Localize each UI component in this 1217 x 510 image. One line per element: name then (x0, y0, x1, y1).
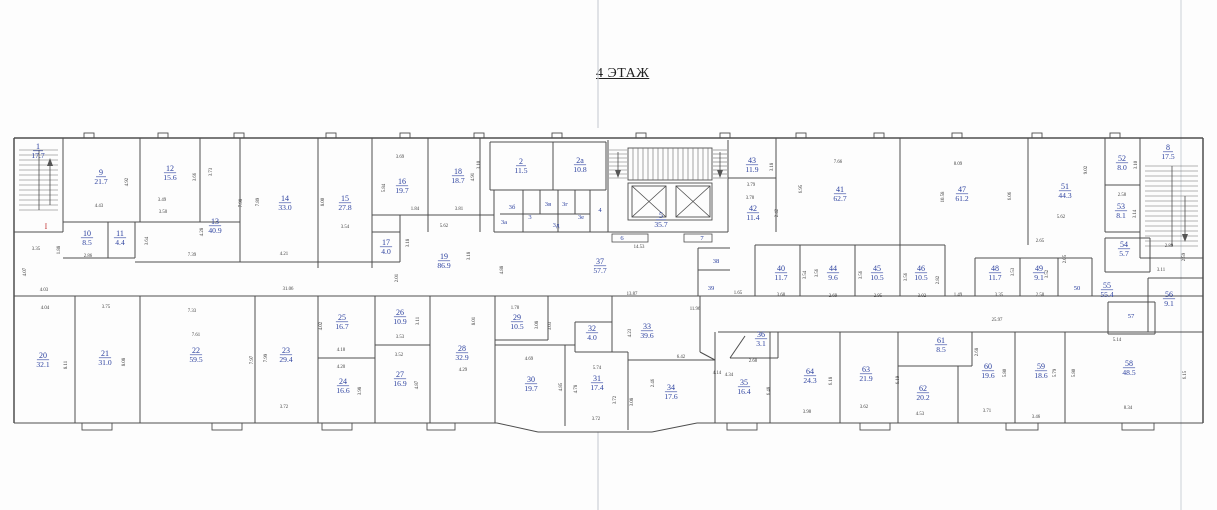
dimension-label: 4.14 (713, 371, 722, 376)
svg-text:14: 14 (281, 194, 289, 203)
dimension-label: 4.28 (200, 227, 205, 236)
dimension-label: 1.84 (411, 207, 420, 212)
room-60-label: 6019.6 (981, 362, 994, 380)
svg-text:18.6: 18.6 (1034, 371, 1047, 380)
room-45-label: 4510.5 (870, 264, 883, 282)
dimension-label: 3.18 (467, 251, 472, 260)
svg-text:51: 51 (1061, 182, 1069, 191)
dimension-label: 4.43 (95, 204, 104, 209)
svg-text:19.6: 19.6 (981, 371, 994, 380)
svg-text:10.5: 10.5 (510, 322, 523, 331)
dimension-label: 8.08 (122, 357, 127, 366)
dimension-label: 4.85 (559, 382, 564, 391)
svg-text:2: 2 (519, 157, 523, 166)
dimension-label: 3.98 (803, 410, 812, 415)
room-6-label: 6 (620, 235, 624, 242)
dimension-labels: 3.354.074.434.923.493.503.663.734.287.39… (23, 155, 1188, 422)
room-52-label: 528.0 (1116, 154, 1128, 172)
room-27-label: 2716.9 (393, 370, 406, 388)
svg-text:30: 30 (527, 375, 535, 384)
room-34-label: 3417.6 (664, 383, 677, 401)
room-59-label: 5918.6 (1034, 362, 1047, 380)
dimension-label: 8.11 (64, 360, 69, 369)
room-23-label: 2329.4 (279, 346, 292, 364)
room-3в-label: 3в (545, 201, 551, 208)
svg-text:5: 5 (659, 211, 663, 220)
dimension-label: 11.96 (690, 307, 701, 312)
svg-text:41: 41 (836, 185, 844, 194)
dimension-label: 7.97 (250, 355, 255, 364)
room-16-label: 1619.7 (395, 177, 408, 195)
dimension-label: 3.75 (102, 305, 111, 310)
room-57-label: 57 (1128, 313, 1135, 320)
svg-text:13: 13 (211, 217, 219, 226)
svg-text:28: 28 (458, 344, 466, 353)
dimension-label: 4.02 (319, 321, 324, 330)
dimension-label: 3.73 (209, 167, 214, 176)
svg-text:60: 60 (984, 362, 992, 371)
svg-text:58: 58 (1125, 359, 1133, 368)
room-3-label: 3 (528, 214, 532, 221)
room-58-label: 5848.5 (1122, 359, 1135, 377)
svg-text:10.5: 10.5 (870, 273, 883, 282)
svg-text:49: 49 (1035, 264, 1043, 273)
dimension-label: 2.58 (1118, 193, 1127, 198)
dimension-label: 3.79 (747, 183, 756, 188)
room-39-label: 39 (708, 285, 715, 292)
dimension-label: 4.53 (916, 412, 925, 417)
room-18-label: 1818.7 (451, 167, 464, 185)
svg-text:9.6: 9.6 (828, 273, 838, 282)
dimension-label: 3.54 (803, 270, 808, 279)
svg-text:62.7: 62.7 (833, 194, 846, 203)
red-mark: I (45, 222, 48, 231)
svg-text:54: 54 (1120, 240, 1128, 249)
dimension-label: 5.84 (382, 183, 387, 192)
svg-text:38: 38 (713, 258, 720, 265)
room-40-label: 4011.7 (774, 264, 787, 282)
dimension-label: 3.49 (158, 198, 167, 203)
dimension-label: 6.15 (1183, 370, 1188, 379)
svg-text:16.9: 16.9 (393, 379, 406, 388)
room-2-label: 211.5 (514, 157, 527, 175)
dimension-label: 2.89 (1165, 244, 1174, 249)
svg-text:34: 34 (667, 383, 675, 392)
svg-text:20.2: 20.2 (916, 393, 929, 402)
svg-text:17.6: 17.6 (664, 392, 677, 401)
svg-text:44.3: 44.3 (1058, 191, 1071, 200)
svg-text:4.4: 4.4 (115, 238, 125, 247)
svg-text:33: 33 (643, 322, 651, 331)
svg-text:1: 1 (36, 142, 40, 151)
dimension-label: 5.80 (1003, 368, 1008, 377)
svg-text:8.0: 8.0 (1117, 163, 1127, 172)
room-46-label: 4610.5 (914, 264, 927, 282)
dimension-label: 6.95 (799, 184, 804, 193)
svg-text:37: 37 (596, 257, 604, 266)
svg-text:21.7: 21.7 (94, 177, 107, 186)
svg-text:31.0: 31.0 (98, 358, 111, 367)
svg-text:57.7: 57.7 (593, 266, 606, 275)
room-14-label: 1433.0 (278, 194, 291, 212)
room-62-label: 6220.2 (916, 384, 929, 402)
dimension-label: 25.97 (992, 318, 1003, 323)
dimension-label: 4.88 (500, 265, 505, 274)
svg-text:62: 62 (919, 384, 927, 393)
room-38-label: 38 (713, 258, 720, 265)
svg-text:21.9: 21.9 (859, 374, 872, 383)
dimension-label: 8.09 (954, 162, 963, 167)
elevator-core-icon (609, 148, 727, 242)
room-63-label: 6321.9 (859, 365, 872, 383)
room-44-label: 449.6 (827, 264, 839, 282)
dimension-label: 4.91 (471, 172, 476, 181)
dimension-label: 3.46 (1032, 415, 1041, 420)
dimension-label: 5.80 (1072, 368, 1077, 377)
room-15-label: 1527.8 (338, 194, 351, 212)
dimension-label: 3.56 (904, 272, 909, 281)
room-26-label: 2610.9 (393, 308, 406, 326)
svg-text:24.3: 24.3 (803, 376, 816, 385)
dimension-label: 4.34 (725, 373, 734, 378)
svg-text:11.7: 11.7 (774, 273, 787, 282)
svg-text:57: 57 (1128, 313, 1135, 320)
room-29-label: 2910.5 (510, 313, 523, 331)
dimension-label: 2.82 (936, 275, 941, 284)
svg-text:55.4: 55.4 (1100, 290, 1113, 299)
svg-text:39.6: 39.6 (640, 331, 653, 340)
dimension-label: 2.65 (1036, 239, 1045, 244)
svg-text:18: 18 (454, 167, 462, 176)
svg-text:15.6: 15.6 (163, 173, 176, 182)
room-2а-label: 2а10.8 (573, 156, 586, 174)
dimension-label: 2.58 (1036, 293, 1045, 298)
svg-text:64: 64 (806, 367, 814, 376)
room-21-label: 2131.0 (98, 349, 111, 367)
room-3е-label: 3е (578, 214, 584, 221)
dimension-label: 3.18 (770, 162, 775, 171)
svg-text:48.5: 48.5 (1122, 368, 1135, 377)
svg-text:32.1: 32.1 (36, 360, 49, 369)
svg-text:25: 25 (338, 313, 346, 322)
svg-text:5.7: 5.7 (1119, 249, 1129, 258)
svg-text:11.7: 11.7 (988, 273, 1001, 282)
staircase-right-icon (1145, 166, 1198, 246)
dimension-label: 7.39 (188, 253, 197, 258)
room-22-label: 2259.5 (189, 346, 202, 364)
dimension-label: 4.20 (337, 365, 346, 370)
floor-plan: 117.7921.71215.61340.9108.5114.41433.015… (0, 0, 1217, 510)
svg-text:17.4: 17.4 (590, 383, 603, 392)
dimension-label: 5.62 (440, 224, 449, 229)
svg-text:4.0: 4.0 (381, 247, 391, 256)
svg-text:61.2: 61.2 (955, 194, 968, 203)
svg-text:9: 9 (99, 168, 103, 177)
dimension-label: 7.61 (192, 333, 201, 338)
svg-text:17.5: 17.5 (1161, 152, 1174, 161)
room-50-label: 50 (1074, 285, 1081, 292)
svg-text:10.9: 10.9 (393, 317, 406, 326)
room-61-label: 618.5 (935, 336, 947, 354)
dimension-label: 4.78 (574, 384, 579, 393)
dimension-label: 4.21 (280, 252, 289, 257)
svg-text:6: 6 (620, 235, 624, 242)
svg-text:2а: 2а (576, 156, 584, 165)
dimension-label: 4.07 (23, 267, 28, 276)
dimension-label: 1.49 (954, 293, 963, 298)
svg-text:26: 26 (396, 308, 404, 317)
dimension-label: 8.00 (321, 197, 326, 206)
room-8-label: 817.5 (1161, 143, 1174, 161)
room-54-label: 545.7 (1118, 240, 1130, 258)
room-3б-label: 3б (509, 204, 516, 211)
dimension-label: 4.18 (337, 348, 346, 353)
dimension-label: 5.74 (593, 366, 602, 371)
room-31-label: 3117.4 (590, 374, 603, 392)
dimension-label: 3.53 (1011, 267, 1016, 276)
dimension-label: 8.34 (1124, 406, 1133, 411)
svg-text:8.5: 8.5 (936, 345, 946, 354)
dimension-label: 4.23 (628, 328, 633, 337)
svg-text:10.5: 10.5 (914, 273, 927, 282)
dimension-label: 3.54 (341, 225, 350, 230)
svg-text:11: 11 (116, 229, 124, 238)
svg-text:40: 40 (777, 264, 785, 273)
dimension-label: 1.65 (734, 291, 743, 296)
svg-text:16.6: 16.6 (336, 386, 349, 395)
dimension-label: 3.64 (145, 236, 150, 245)
svg-text:19.7: 19.7 (395, 186, 408, 195)
room-28-label: 2832.9 (455, 344, 468, 362)
svg-text:43: 43 (748, 156, 756, 165)
dimension-label: 3.52 (1045, 269, 1050, 278)
dimension-label: 3.03 (548, 321, 553, 330)
dimension-label: 6.06 (1008, 191, 1013, 200)
dimension-label: 4.87 (415, 380, 420, 389)
svg-text:4.0: 4.0 (587, 333, 597, 342)
scan-artifact-lines (598, 0, 1181, 510)
room-12-label: 1215.6 (163, 164, 176, 182)
dimension-label: 2.69 (829, 294, 838, 299)
room-20-label: 2032.1 (36, 351, 49, 369)
svg-text:20: 20 (39, 351, 47, 360)
dimension-label: 3.08 (535, 320, 540, 329)
svg-text:3б: 3б (509, 204, 516, 211)
svg-text:3.1: 3.1 (756, 339, 766, 348)
svg-text:33.0: 33.0 (278, 203, 291, 212)
dimension-label: 3.69 (396, 155, 405, 160)
svg-text:15: 15 (341, 194, 349, 203)
room-3д-label: 3д (553, 222, 560, 229)
room-42-label: 4211.4 (746, 204, 759, 222)
dimension-label: 3.56 (815, 268, 820, 277)
dimension-label: 2.95 (874, 294, 883, 299)
svg-text:16.4: 16.4 (737, 387, 750, 396)
svg-text:11.4: 11.4 (746, 213, 759, 222)
room-11-label: 114.4 (114, 229, 126, 247)
svg-text:48: 48 (991, 264, 999, 273)
dimension-label: 3.10 (1134, 160, 1139, 169)
dimension-label: 3.18 (406, 238, 411, 247)
svg-text:35: 35 (740, 378, 748, 387)
svg-text:50: 50 (1074, 285, 1081, 292)
svg-text:22: 22 (192, 346, 200, 355)
svg-text:47: 47 (958, 185, 966, 194)
dimension-label: 4.29 (459, 368, 468, 373)
dimension-label: 4.03 (40, 288, 49, 293)
svg-text:3: 3 (528, 214, 532, 221)
room-49-label: 499.1 (1033, 264, 1045, 282)
svg-text:19.7: 19.7 (524, 384, 537, 393)
svg-text:17: 17 (382, 238, 390, 247)
room-47-label: 4761.2 (955, 185, 968, 203)
dimension-label: 4.04 (41, 306, 50, 311)
svg-text:3в: 3в (545, 201, 551, 208)
svg-text:86.9: 86.9 (437, 261, 450, 270)
dimension-label: 2.05 (1063, 254, 1068, 263)
dimension-label: 3.68 (777, 293, 786, 298)
svg-text:11.9: 11.9 (745, 165, 758, 174)
room-56-label: 569.1 (1163, 290, 1175, 308)
svg-text:56: 56 (1165, 290, 1173, 299)
room-33-label: 3339.6 (640, 322, 653, 340)
svg-text:3г: 3г (562, 201, 568, 208)
dimension-label: 2.86 (84, 254, 93, 259)
dimension-label: 8.01 (472, 316, 477, 325)
svg-text:32: 32 (588, 324, 596, 333)
room-41-label: 4162.7 (833, 185, 846, 203)
room-32-label: 324.0 (586, 324, 598, 342)
dimension-label: 7.33 (188, 309, 197, 314)
room-53-label: 538.1 (1115, 202, 1127, 220)
dimension-label: 7.98 (239, 198, 244, 207)
room-55-label: 5555.4 (1100, 281, 1113, 299)
room-10-label: 108.5 (81, 229, 93, 247)
svg-text:4: 4 (598, 207, 602, 214)
dimension-label: 3.98 (358, 386, 363, 395)
svg-text:8: 8 (1166, 143, 1170, 152)
dimension-label: 5.62 (1057, 215, 1066, 220)
svg-text:3д: 3д (553, 222, 560, 229)
svg-text:52: 52 (1118, 154, 1126, 163)
dimension-label: 2.01 (395, 273, 400, 282)
dimension-label: 6.48 (767, 386, 772, 395)
svg-text:24: 24 (339, 377, 347, 386)
svg-text:29: 29 (513, 313, 521, 322)
dimension-label: 2.68 (749, 359, 758, 364)
room-36-label: 363.1 (755, 330, 767, 348)
svg-text:17.7: 17.7 (31, 151, 44, 160)
svg-text:46: 46 (917, 264, 925, 273)
dimension-label: 3.50 (159, 210, 168, 215)
room-37-label: 3757.7 (593, 257, 606, 275)
dimension-label: 1.78 (511, 306, 520, 311)
svg-text:16.7: 16.7 (335, 322, 348, 331)
svg-text:63: 63 (862, 365, 870, 374)
dimension-label: 3.78 (746, 196, 755, 201)
dimension-label: 5.14 (1113, 338, 1122, 343)
dimension-label: 3.35 (995, 293, 1004, 298)
svg-text:29.4: 29.4 (279, 355, 292, 364)
svg-text:59: 59 (1037, 362, 1045, 371)
dimension-label: 3.10 (477, 160, 482, 169)
svg-text:23: 23 (282, 346, 290, 355)
svg-text:40.9: 40.9 (208, 226, 221, 235)
dimension-label: 2.46 (651, 378, 656, 387)
room-25-label: 2516.7 (335, 313, 348, 331)
dimension-label: 4.69 (525, 357, 534, 362)
room-3а-label: 3а (501, 219, 507, 226)
svg-text:55: 55 (1103, 281, 1111, 290)
svg-text:18.7: 18.7 (451, 176, 464, 185)
svg-text:16: 16 (398, 177, 406, 186)
dimension-label: 6.18 (829, 376, 834, 385)
dimension-label: 3.11 (1157, 268, 1166, 273)
dimension-label: 3.81 (455, 207, 464, 212)
svg-text:8.5: 8.5 (82, 238, 92, 247)
floor-plan-page: 4 ЭТАЖ 117.7921.71215.61340.9108.5114.41… (0, 0, 1217, 510)
dimension-label: 3.35 (32, 247, 41, 252)
dimension-label: 2.42 (775, 208, 780, 217)
dimension-label: 1.88 (57, 245, 62, 254)
svg-text:9.1: 9.1 (1034, 273, 1044, 282)
dimension-label: 9.02 (1084, 165, 1089, 174)
svg-text:3е: 3е (578, 214, 584, 221)
dimension-label: 7.66 (834, 160, 843, 165)
room-48-label: 4811.7 (988, 264, 1001, 282)
svg-text:27: 27 (396, 370, 404, 379)
room-24-label: 2416.6 (336, 377, 349, 395)
dimension-label: 3.14 (1133, 209, 1138, 218)
dimension-label: 4.92 (125, 177, 130, 186)
svg-text:59.5: 59.5 (189, 355, 202, 364)
dimension-label: 3.02 (918, 294, 927, 299)
room-17-label: 174.0 (380, 238, 392, 256)
room-9-label: 921.7 (94, 168, 107, 186)
dimension-label: 7.89 (256, 197, 261, 206)
dimension-label: 3.72 (613, 395, 618, 404)
dimension-label: 10.58 (941, 191, 946, 202)
svg-text:11.5: 11.5 (514, 166, 527, 175)
dimension-label: 3.62 (860, 405, 869, 410)
room-43-label: 4311.9 (745, 156, 758, 174)
svg-text:27.8: 27.8 (338, 203, 351, 212)
svg-text:8.1: 8.1 (1116, 211, 1126, 220)
dimension-label: 3.72 (592, 417, 601, 422)
svg-text:32.9: 32.9 (455, 353, 468, 362)
svg-text:45: 45 (873, 264, 881, 273)
svg-text:53: 53 (1117, 202, 1125, 211)
room-19-label: 1986.9 (437, 252, 450, 270)
svg-text:21: 21 (101, 349, 109, 358)
room-30-label: 3019.7 (524, 375, 537, 393)
svg-text:10: 10 (83, 229, 91, 238)
svg-text:35.7: 35.7 (654, 220, 667, 229)
dimension-label: 3.11 (416, 316, 421, 325)
svg-text:19: 19 (440, 252, 448, 261)
room-35-label: 3516.4 (737, 378, 750, 396)
room-13-label: 1340.9 (208, 217, 221, 235)
svg-text:31: 31 (593, 374, 601, 383)
svg-text:61: 61 (937, 336, 945, 345)
dimension-label: 13.87 (627, 292, 638, 297)
svg-text:12: 12 (166, 164, 174, 173)
dimension-label: 3.56 (859, 270, 864, 279)
dimension-label: 14.53 (634, 245, 645, 250)
dimension-label: 2.68 (975, 347, 980, 356)
room-3г-label: 3г (562, 201, 568, 208)
svg-text:42: 42 (749, 204, 757, 213)
